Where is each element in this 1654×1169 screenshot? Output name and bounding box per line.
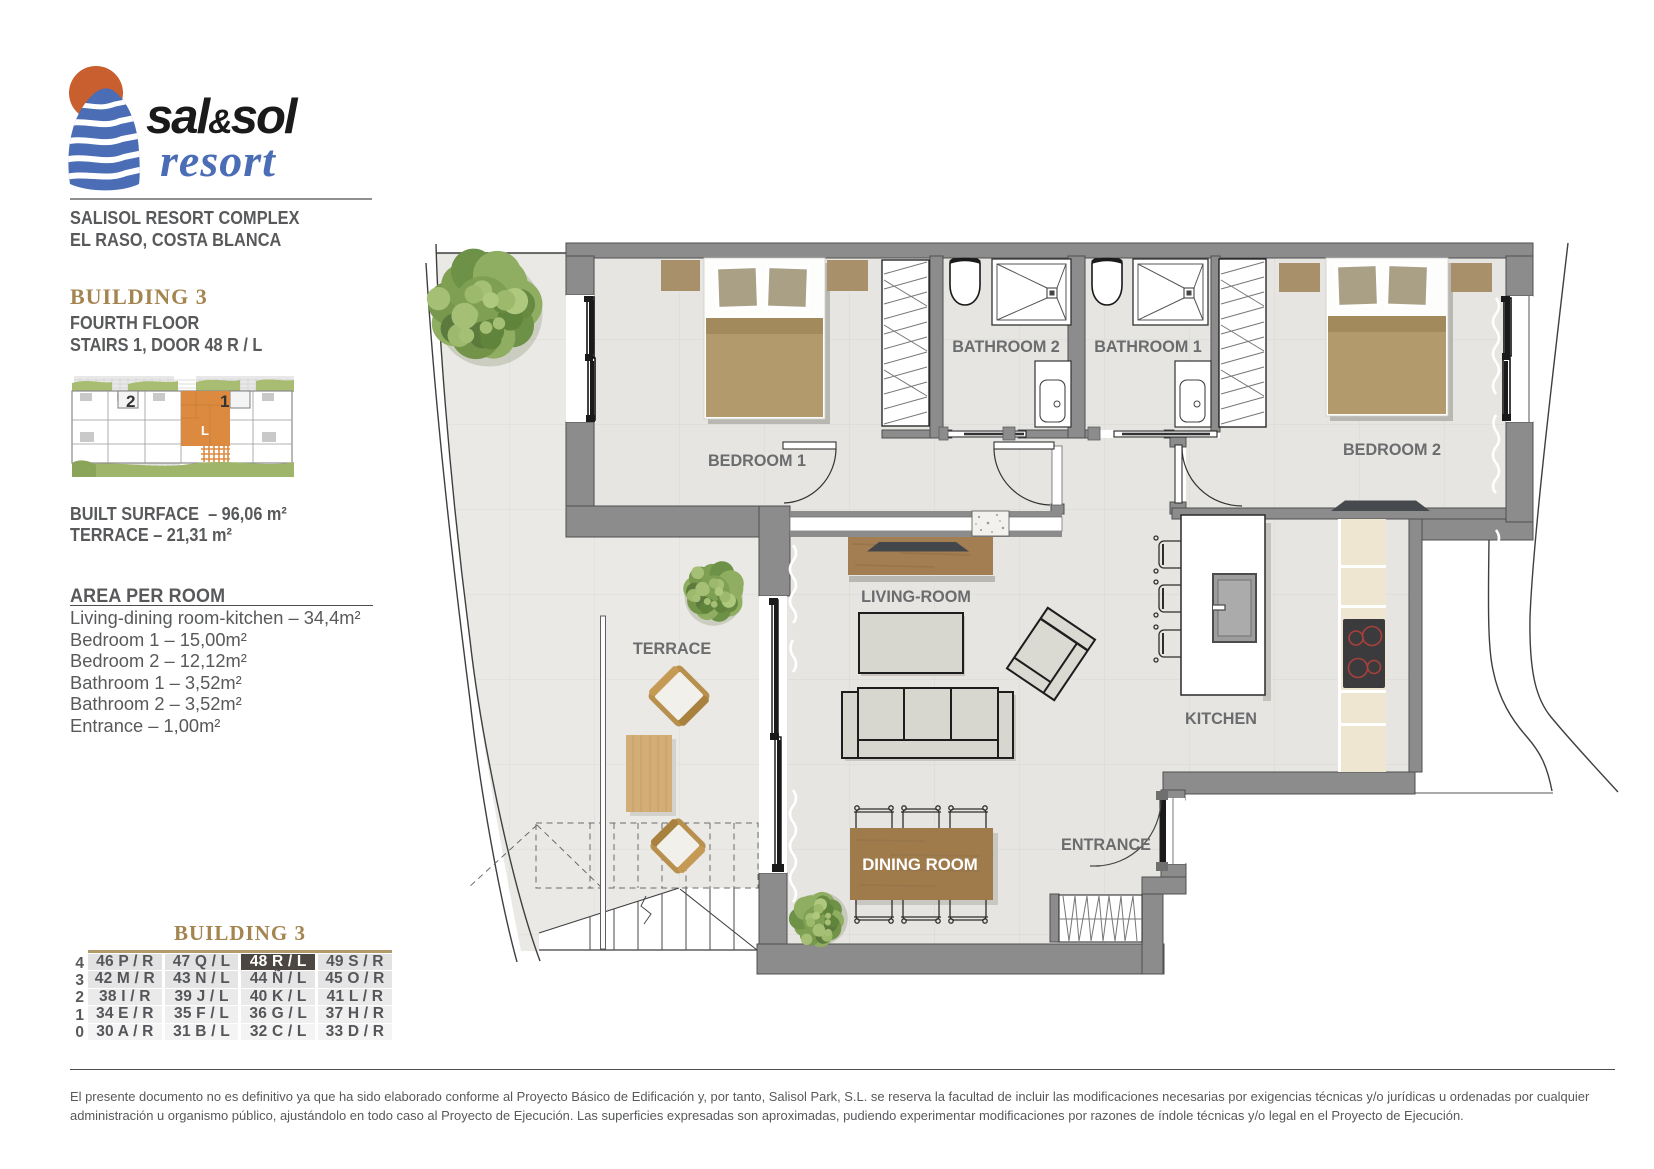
svg-text:DINING ROOM: DINING ROOM [862,855,978,874]
svg-text:BEDROOM 2: BEDROOM 2 [1343,441,1441,459]
svg-text:ENTRANCE: ENTRANCE [1061,836,1151,854]
svg-text:BATHROOM 2: BATHROOM 2 [952,338,1060,356]
svg-text:KITCHEN: KITCHEN [1185,710,1257,728]
svg-text:BATHROOM 1: BATHROOM 1 [1094,338,1202,356]
svg-text:BEDROOM 1: BEDROOM 1 [708,452,806,470]
svg-text:LIVING-ROOM: LIVING-ROOM [861,588,971,606]
svg-text:TERRACE: TERRACE [633,640,711,658]
